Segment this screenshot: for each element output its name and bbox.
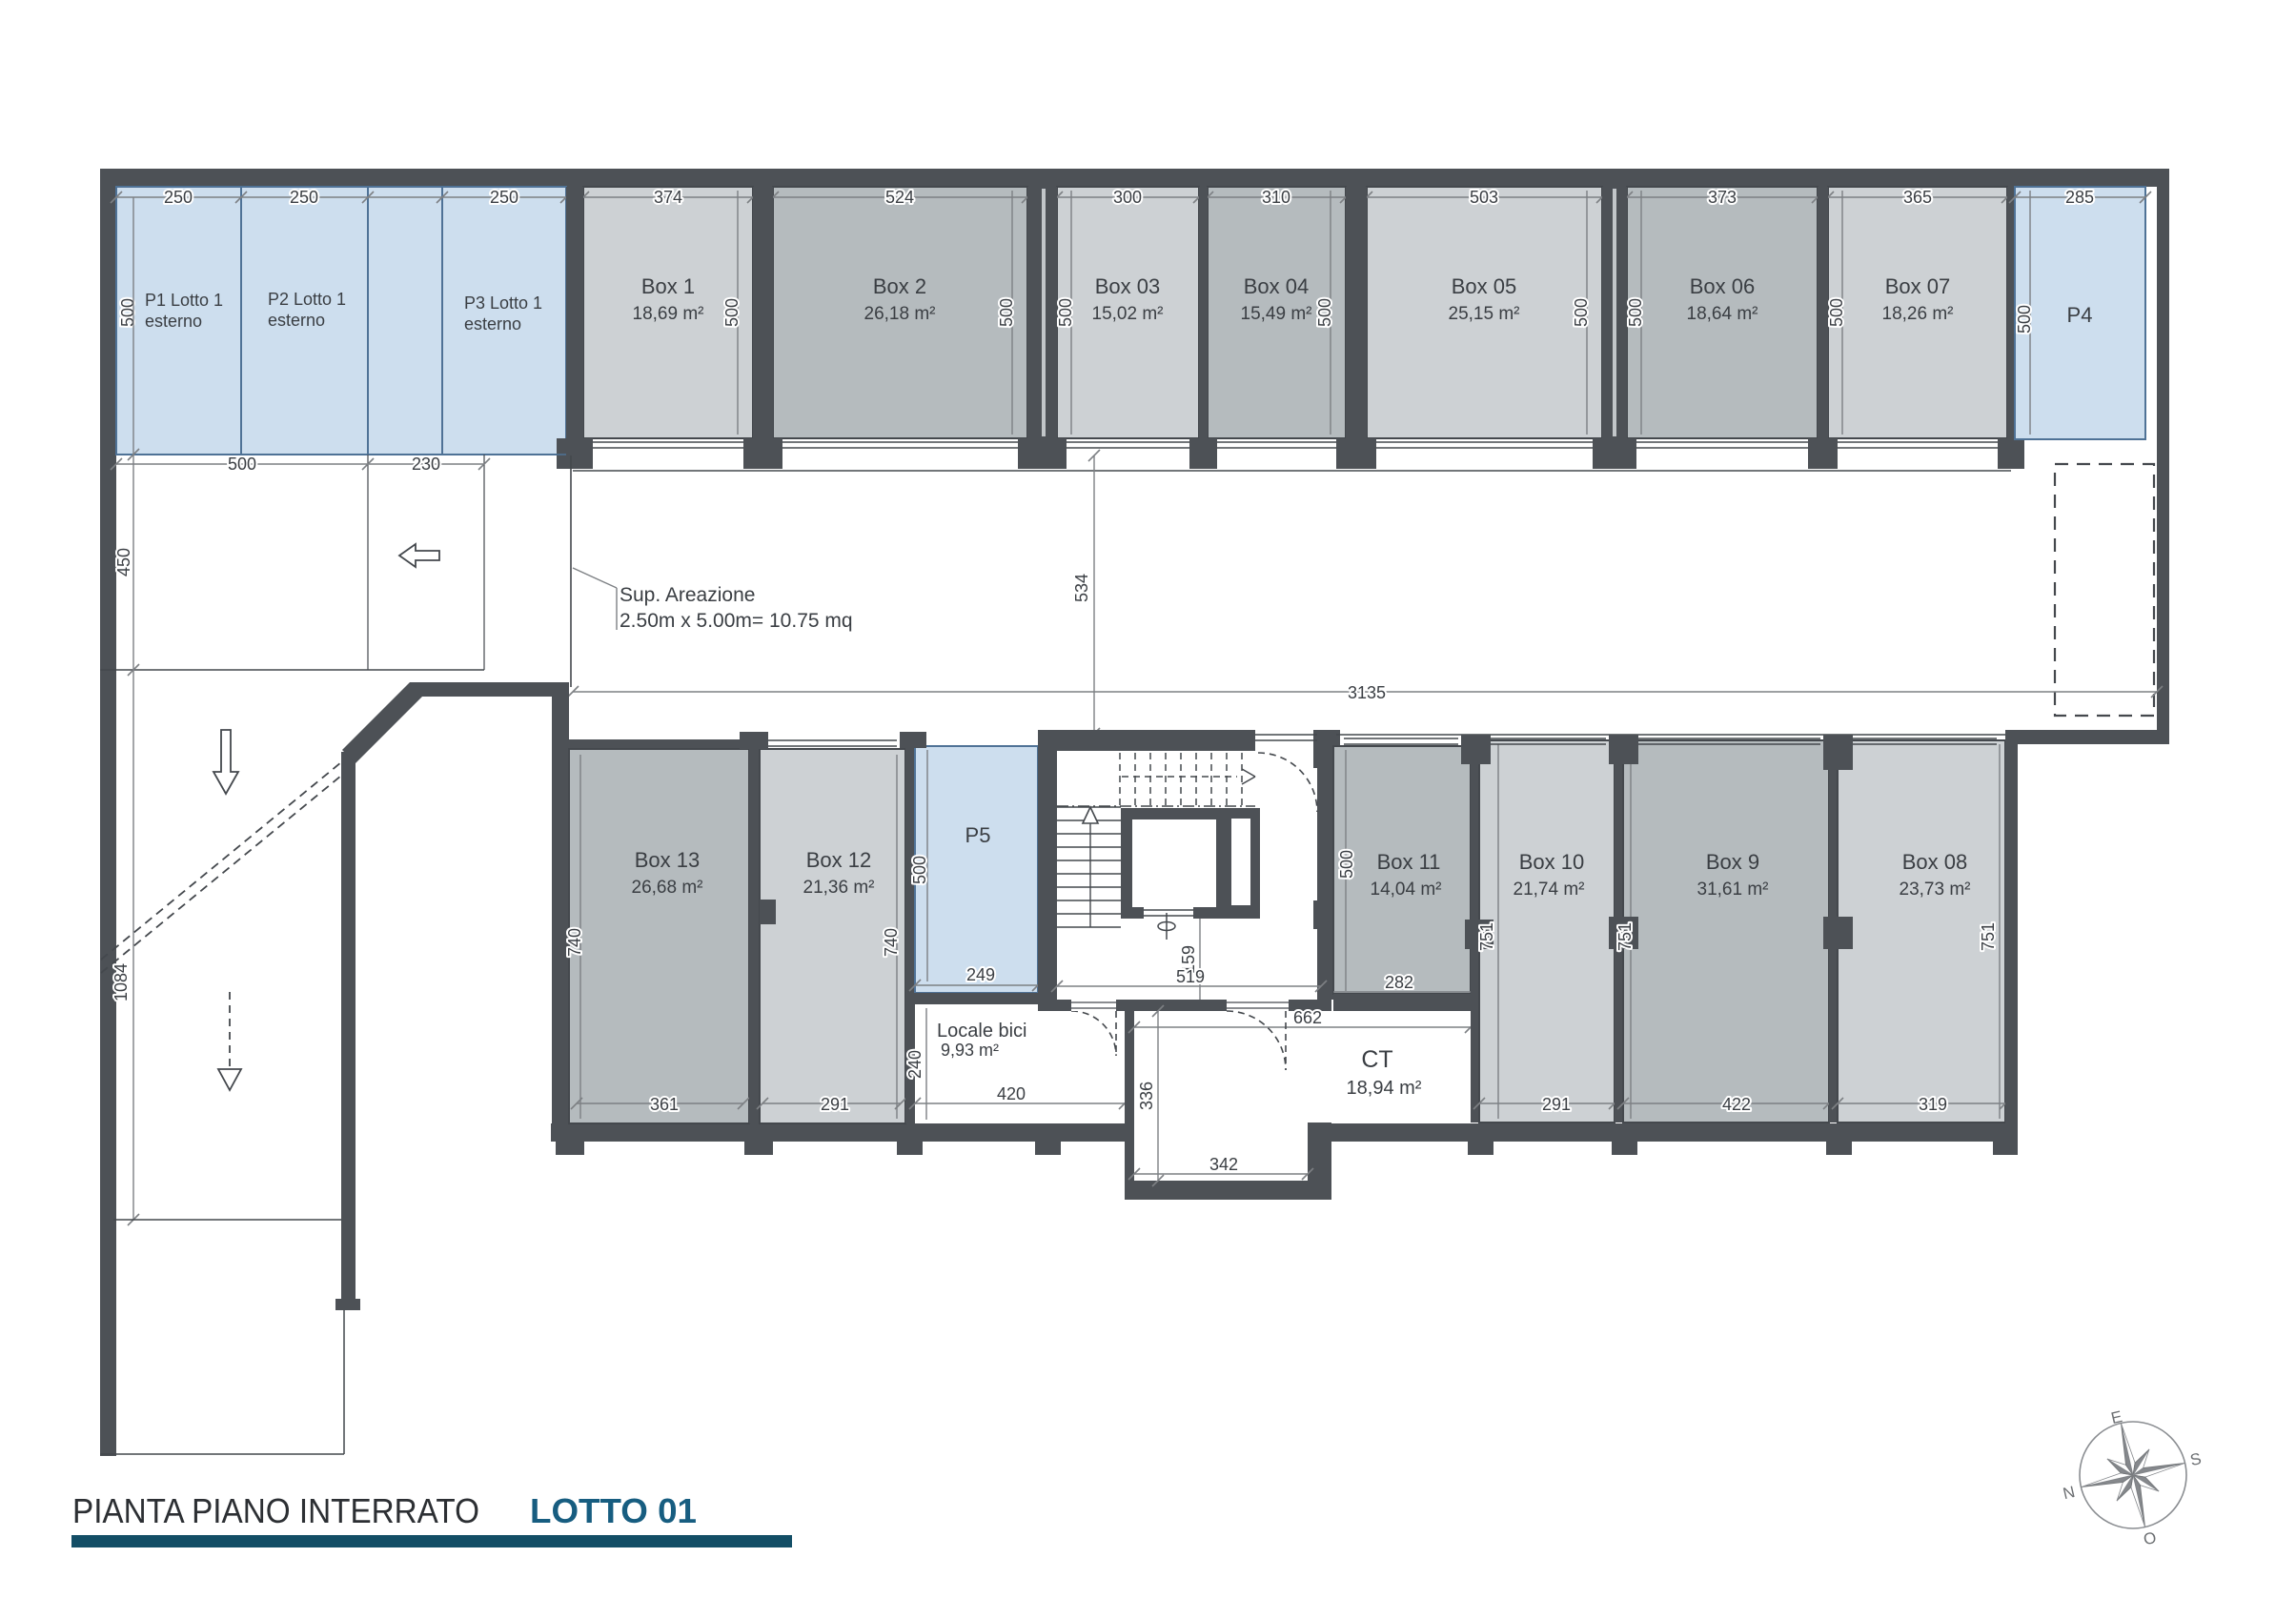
svg-text:18,26 m²: 18,26 m² (1882, 304, 1954, 324)
svg-text:336: 336 (1137, 1082, 1156, 1110)
svg-text:373: 373 (1708, 188, 1737, 207)
svg-text:1084: 1084 (112, 963, 131, 1001)
svg-text:2.50m x 5.00m= 10.75 mq: 2.50m x 5.00m= 10.75 mq (620, 610, 853, 632)
svg-text:esterno: esterno (464, 314, 521, 334)
svg-text:319: 319 (1919, 1095, 1947, 1114)
svg-text:P3 Lotto 1: P3 Lotto 1 (464, 293, 542, 313)
svg-text:662: 662 (1293, 1008, 1322, 1027)
svg-text:230: 230 (412, 455, 440, 474)
svg-text:291: 291 (1542, 1095, 1571, 1114)
svg-text:751: 751 (1615, 922, 1635, 951)
svg-text:300: 300 (1113, 188, 1142, 207)
svg-text:361: 361 (650, 1095, 679, 1114)
svg-text:P5: P5 (965, 823, 991, 847)
svg-text:420: 420 (997, 1084, 1026, 1103)
svg-text:500: 500 (228, 455, 256, 474)
svg-text:500: 500 (1626, 298, 1645, 327)
svg-text:310: 310 (1262, 188, 1290, 207)
svg-text:500: 500 (1337, 850, 1356, 879)
svg-text:374: 374 (654, 188, 682, 207)
svg-text:500: 500 (1572, 298, 1591, 327)
svg-text:15,02 m²: 15,02 m² (1092, 304, 1164, 324)
svg-text:23,73 m²: 23,73 m² (1900, 880, 1971, 900)
svg-text:P4: P4 (2067, 303, 2093, 327)
svg-text:500: 500 (1315, 298, 1334, 327)
svg-text:Box 03: Box 03 (1095, 274, 1161, 298)
svg-text:500: 500 (910, 856, 929, 884)
svg-text:21,74 m²: 21,74 m² (1514, 880, 1585, 900)
svg-text:500: 500 (1827, 298, 1846, 327)
svg-text:Box 2: Box 2 (873, 274, 926, 298)
svg-text:500: 500 (2015, 305, 2034, 334)
svg-text:250: 250 (164, 188, 193, 207)
svg-text:Box 11: Box 11 (1377, 850, 1441, 874)
svg-text:Box 13: Box 13 (635, 848, 701, 872)
svg-text:18,69 m²: 18,69 m² (633, 304, 704, 324)
svg-text:31,61 m²: 31,61 m² (1697, 880, 1769, 900)
svg-text:esterno: esterno (268, 311, 325, 330)
svg-text:Box 04: Box 04 (1244, 274, 1310, 298)
svg-text:285: 285 (2065, 188, 2094, 207)
svg-text:25,15 m²: 25,15 m² (1449, 304, 1520, 324)
svg-text:500: 500 (118, 298, 137, 327)
svg-text:282: 282 (1385, 973, 1413, 992)
svg-text:18,94 m²: 18,94 m² (1347, 1078, 1422, 1099)
svg-text:9,93 m²: 9,93 m² (941, 1041, 999, 1060)
svg-text:249: 249 (966, 965, 995, 984)
svg-text:534: 534 (1072, 574, 1091, 602)
svg-text:Box 05: Box 05 (1452, 274, 1517, 298)
svg-text:524: 524 (885, 188, 914, 207)
svg-text:500: 500 (1056, 298, 1075, 327)
svg-text:14,04 m²: 14,04 m² (1371, 880, 1442, 900)
svg-text:450: 450 (114, 548, 133, 576)
svg-text:Box 08: Box 08 (1902, 850, 1968, 874)
svg-text:422: 422 (1722, 1095, 1751, 1114)
svg-text:751: 751 (1979, 922, 1998, 951)
svg-text:15,49 m²: 15,49 m² (1241, 304, 1312, 324)
svg-text:Locale bici: Locale bici (937, 1021, 1027, 1042)
svg-text:Box 06: Box 06 (1690, 274, 1756, 298)
svg-text:P1 Lotto 1: P1 Lotto 1 (145, 291, 223, 310)
svg-text:342: 342 (1209, 1155, 1238, 1174)
svg-text:Sup. Areazione: Sup. Areazione (620, 584, 755, 606)
svg-text:519: 519 (1176, 967, 1205, 986)
svg-text:291: 291 (821, 1095, 849, 1114)
svg-text:esterno: esterno (145, 312, 202, 331)
svg-text:26,68 m²: 26,68 m² (632, 878, 703, 898)
svg-text:CT: CT (1361, 1046, 1392, 1073)
svg-text:Box 10: Box 10 (1519, 850, 1585, 874)
svg-text:500: 500 (722, 298, 742, 327)
svg-text:365: 365 (1903, 188, 1932, 207)
svg-text:751: 751 (1477, 922, 1496, 951)
svg-text:LOTTO 01: LOTTO 01 (530, 1491, 697, 1530)
svg-text:18,64 m²: 18,64 m² (1687, 304, 1758, 324)
svg-text:PIANTA PIANO INTERRATO: PIANTA PIANO INTERRATO (72, 1491, 479, 1530)
svg-text:250: 250 (490, 188, 518, 207)
svg-text:240: 240 (905, 1050, 924, 1079)
svg-text:740: 740 (565, 928, 584, 957)
svg-text:Box 1: Box 1 (641, 274, 695, 298)
svg-text:21,36 m²: 21,36 m² (803, 878, 875, 898)
svg-text:740: 740 (882, 928, 901, 957)
svg-text:P2 Lotto 1: P2 Lotto 1 (268, 290, 346, 309)
svg-text:Box 12: Box 12 (806, 848, 872, 872)
svg-text:3135: 3135 (1348, 683, 1386, 702)
svg-text:250: 250 (290, 188, 318, 207)
svg-text:500: 500 (997, 298, 1016, 327)
svg-text:503: 503 (1470, 188, 1498, 207)
svg-text:Box 9: Box 9 (1706, 850, 1759, 874)
svg-text:Box 07: Box 07 (1885, 274, 1951, 298)
svg-text:26,18 m²: 26,18 m² (864, 304, 936, 324)
